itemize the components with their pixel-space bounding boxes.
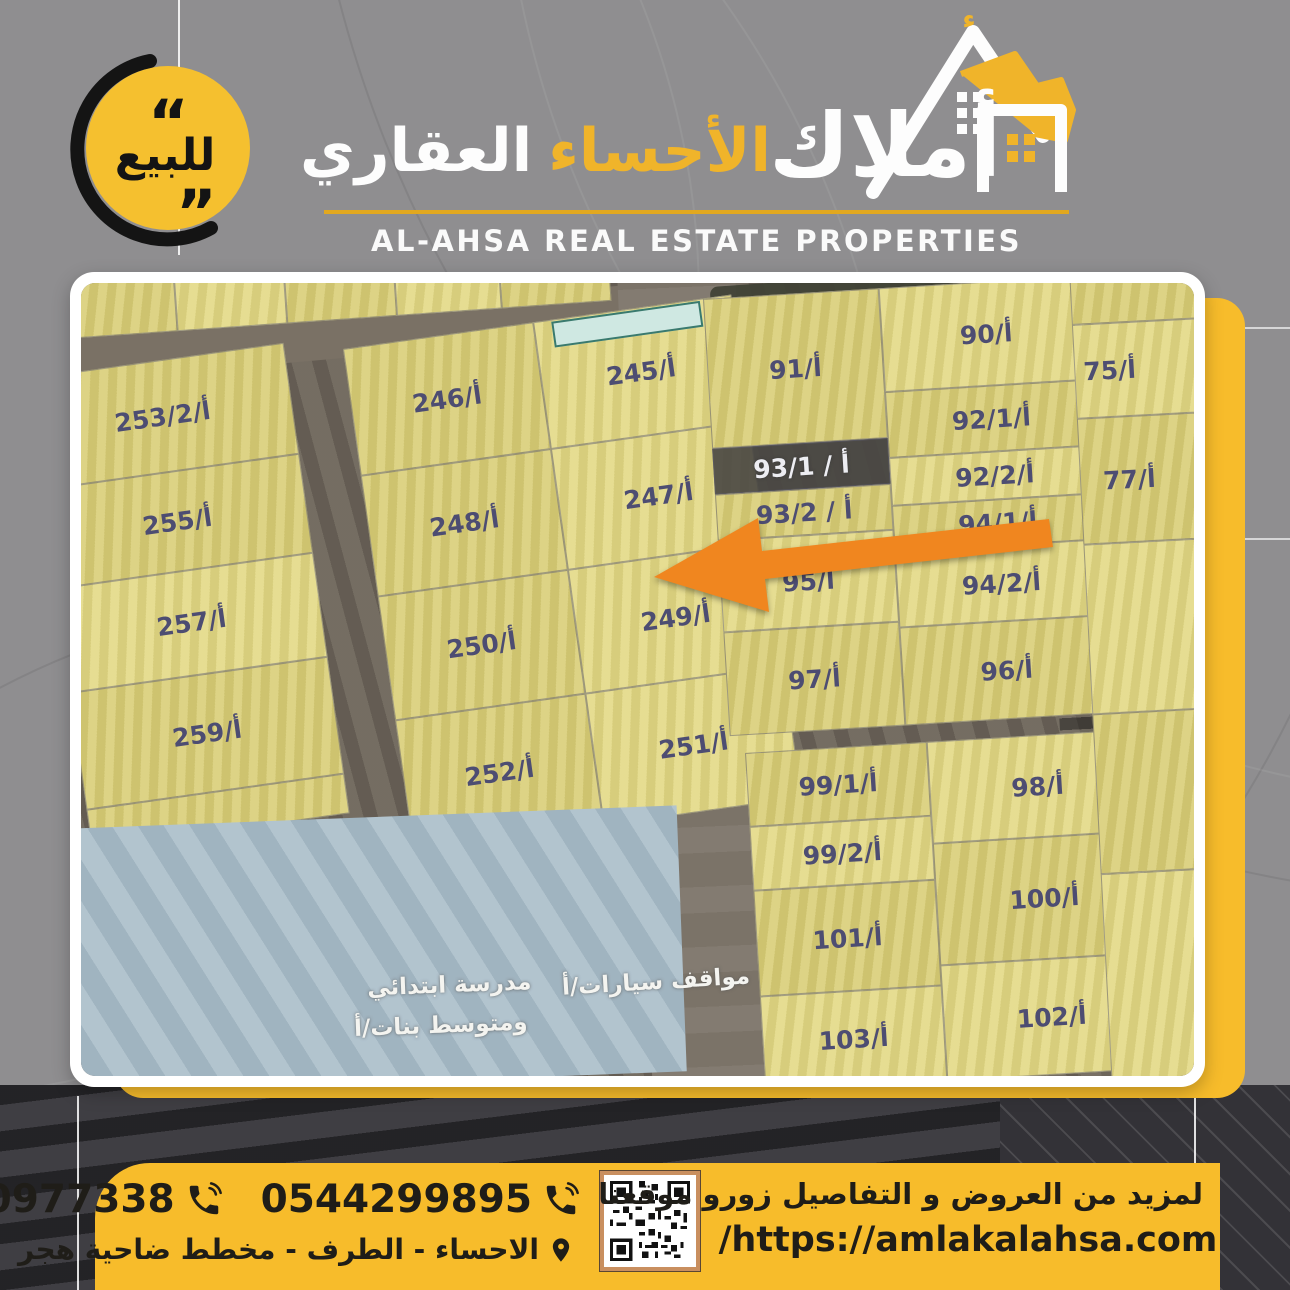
phone-number-1[interactable]: 0544299895: [261, 1177, 532, 1222]
flyer-poster: ء أملاك الأحساء العقاري AL-AHSA REAL EST…: [0, 0, 1290, 1290]
company-logo: ء أملاك الأحساء العقاري AL-AHSA REAL EST…: [318, 14, 1080, 258]
phone-icon: [185, 1181, 223, 1219]
website-section: لمزيد من العروض و التفاصيل زورو موقعنا /…: [723, 1177, 1203, 1261]
phone-unit[interactable]: 0550977338: [0, 1177, 223, 1222]
phone-icon: [542, 1181, 580, 1219]
for-sale-badge: “ للبيع ”: [60, 44, 270, 256]
website-row[interactable]: /https://amlakalahsa.com: [723, 1219, 1203, 1261]
phone-unit[interactable]: 0544299895: [261, 1177, 580, 1222]
logo-arabic-row: ء أملاك الأحساء العقاري: [318, 14, 1080, 204]
phone-number-2[interactable]: 0550977338: [0, 1177, 175, 1222]
accent-line: [1242, 327, 1290, 329]
logo-word-amlak: أملاك: [769, 102, 1001, 190]
map-card: 253/2/أ 255/أ 257/أ 259/أ 246/أ 245/أ 24…: [70, 272, 1205, 1087]
logo-word-aqari: العقاري: [300, 116, 532, 186]
satellite-parcel-map: 253/2/أ 255/أ 257/أ 259/أ 246/أ 245/أ 24…: [81, 283, 1194, 1076]
svg-text:ء: ء: [962, 14, 975, 35]
logo-word-ahsa: الأحساء: [548, 116, 771, 186]
badge-label: للبيع: [60, 130, 270, 181]
address-row: الاحساء - الطرف - مخطط ضاحية هجر: [18, 1233, 575, 1266]
badge-close-quote: ”: [176, 182, 217, 244]
address-text: الاحساء - الطرف - مخطط ضاحية هجر: [18, 1233, 539, 1266]
promo-text: لمزيد من العروض و التفاصيل زورو موقعنا: [723, 1177, 1203, 1211]
website-url[interactable]: /https://amlakalahsa.com: [719, 1220, 1218, 1260]
accent-line: [1238, 538, 1290, 540]
location-arrow-icon: [81, 283, 1194, 1076]
logo-divider: [324, 210, 1069, 214]
logo-house-icon: ء أملاك: [775, 14, 1080, 204]
contact-footer: 0544299895 0550977338 الاحساء - الطرف - …: [95, 1163, 1220, 1290]
location-pin-icon: [547, 1236, 575, 1264]
phone-numbers: 0544299895 0550977338: [0, 1177, 580, 1222]
logo-english-name: AL-AHSA REAL ESTATE PROPERTIES: [324, 224, 1069, 258]
